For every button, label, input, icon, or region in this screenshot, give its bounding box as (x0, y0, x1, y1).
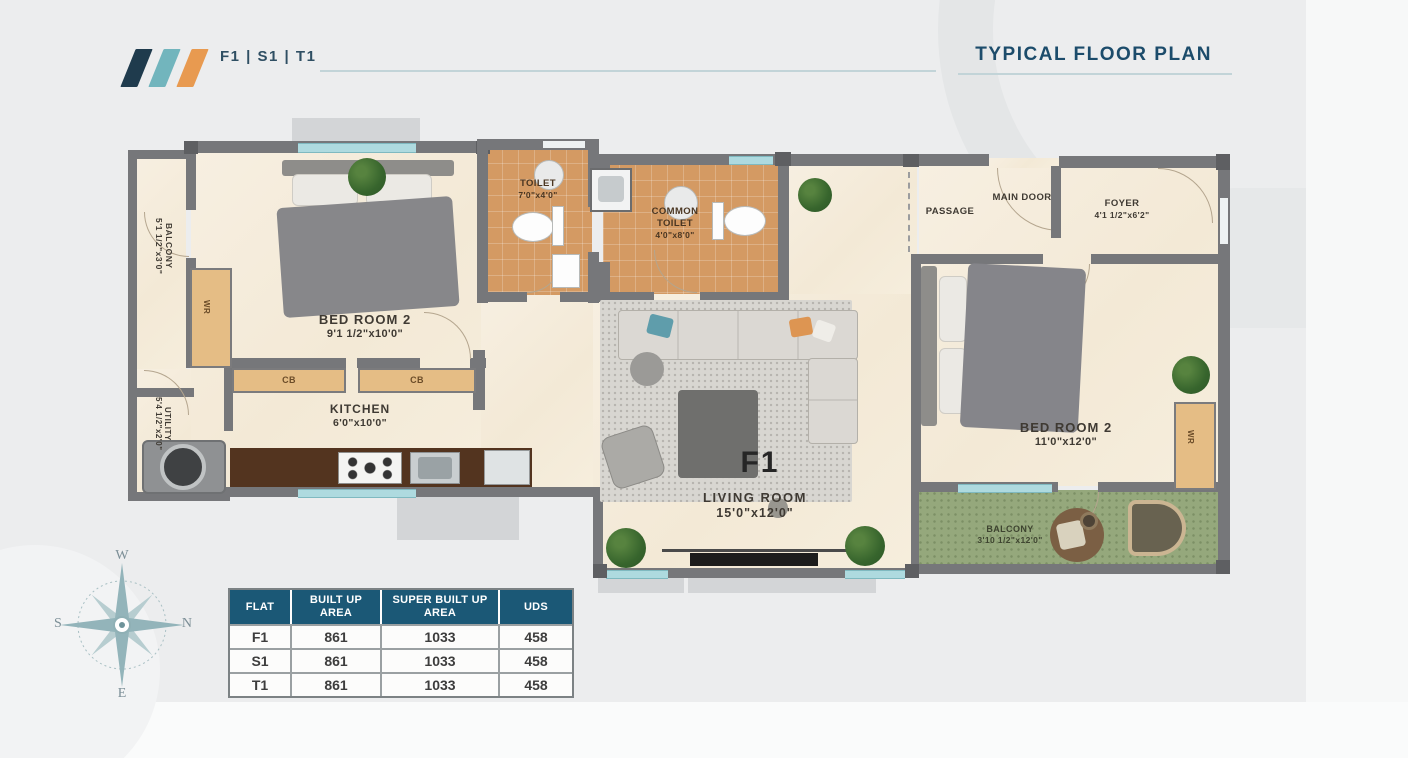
flat-codes: F1 | S1 | T1 (220, 48, 316, 65)
wall (911, 490, 919, 574)
window-kitchen (298, 489, 416, 498)
wall (1059, 156, 1228, 168)
wall (128, 150, 137, 397)
wardrobe-right-label: WR (1186, 430, 1195, 444)
brand-logo (122, 46, 214, 92)
title-underline (958, 73, 1232, 75)
compass-rose: W N S E (52, 550, 192, 700)
table-header-row: FLAT BUILT UP AREA SUPER BUILT UP AREA U… (230, 590, 572, 624)
sofa-pillow-orange (789, 316, 814, 338)
room-name: COMMON TOILET (640, 206, 710, 230)
room-dims: 4'1 1/2"x6'2" (1062, 210, 1182, 221)
balcony-chair-icon (1128, 500, 1186, 556)
room-dims: 7'0"x4'0" (486, 190, 590, 201)
logo-bar-orange (176, 49, 208, 87)
room-label-bedroom-left: BED ROOM 2 9'1 1/2"x10'0" (270, 312, 460, 342)
wall (128, 150, 190, 159)
logo-bar-navy (120, 49, 152, 87)
wall (1091, 254, 1228, 264)
toilet-wc-icon (512, 212, 554, 242)
room-label-utility: UTILITY 5'4 1/2"x2'0" (140, 370, 172, 478)
room-name: BED ROOM 2 (270, 312, 460, 328)
room-name: TOILET (486, 178, 590, 190)
room-dims: 15'0"x12'0" (655, 506, 855, 522)
bed-right-pillow (939, 276, 967, 342)
pouf (630, 352, 664, 386)
room-dims: 5'1 1/2"x3'0" (154, 218, 164, 274)
window-common-toilet (729, 156, 773, 165)
tv-console-icon (690, 553, 818, 566)
wall-pier (1216, 154, 1230, 170)
compass-left-label: S (54, 616, 62, 632)
basin (598, 176, 624, 202)
kitchen-sink-icon (410, 452, 460, 484)
wall (128, 363, 137, 501)
compass-star-icon (52, 550, 192, 700)
sink-basin (418, 457, 452, 479)
table-header-super-built-up: SUPER BUILT UP AREA (382, 590, 500, 624)
logo-bar-teal (148, 49, 180, 87)
room-name: UTILITY (163, 407, 172, 441)
room-name: FOYER (1062, 198, 1182, 210)
cell-flat: T1 (230, 672, 292, 696)
unit-label-f1: F1 (700, 446, 820, 480)
plant-icon (348, 158, 386, 196)
cell-uds: 458 (500, 624, 572, 648)
plant-icon (1172, 356, 1210, 394)
room-name: BALCONY (922, 524, 1098, 535)
room-dims: 4'0"x8'0" (620, 230, 730, 241)
cell-built-up: 861 (292, 672, 382, 696)
compass-bottom-label: E (52, 686, 192, 702)
plant-icon (798, 178, 832, 212)
compass-top-label: W (52, 548, 192, 564)
table-row: T1 861 1033 458 (230, 672, 572, 696)
room-label-balcony-left: BALCONY 5'1 1/2"x3'0" (140, 182, 174, 310)
room-dims: 6'0"x10'0" (252, 417, 468, 430)
cell-super-built-up: 1033 (382, 624, 500, 648)
cell-flat: F1 (230, 624, 292, 648)
wall (186, 150, 196, 210)
wall (778, 154, 789, 302)
wardrobe-left: WR (190, 268, 232, 368)
cell-uds: 458 (500, 648, 572, 672)
room-dims: 9'1 1/2"x10'0" (270, 328, 460, 342)
decor-right-strip (1306, 0, 1408, 758)
room-name: BED ROOM 2 (948, 420, 1184, 436)
cabinet-1-label: CB (234, 370, 344, 391)
compass-right-label: N (182, 616, 192, 632)
room-label-bedroom-right: BED ROOM 2 11'0"x12'0" (948, 420, 1184, 450)
wall (357, 358, 420, 368)
wall-pier (905, 564, 919, 578)
wall-pier (593, 564, 607, 578)
ledge-living-1 (598, 578, 684, 593)
window-toilet (543, 141, 585, 148)
dishwasher (484, 450, 530, 485)
wall (789, 154, 989, 166)
table-header-flat: FLAT (230, 590, 292, 624)
tv-shelf (662, 549, 848, 552)
common-toilet-wc-icon (724, 206, 766, 236)
floor-plan-page: F1 | S1 | T1 TYPICAL FLOOR PLAN (0, 0, 1408, 758)
wall-pier (903, 154, 919, 167)
table-header-built-up: BUILT UP AREA (292, 590, 382, 624)
window-bedroom-left (298, 143, 416, 153)
plant-icon (845, 526, 885, 566)
page-title: TYPICAL FLOOR PLAN (930, 44, 1212, 66)
wall-pier (1216, 560, 1230, 574)
room-label-toilet: TOILET 7'0"x4'0" (486, 178, 590, 201)
cell-built-up: 861 (292, 624, 382, 648)
stove-icon (338, 452, 402, 484)
toilet-wc-tank (552, 206, 564, 246)
bed-right-duvet (960, 263, 1086, 433)
wall (477, 139, 488, 303)
sofa-right (808, 358, 858, 444)
cell-flat: S1 (230, 648, 292, 672)
wardrobe-left-label: WR (202, 300, 211, 314)
decor-bottom-strip (0, 702, 1408, 758)
table-header-uds: UDS (500, 590, 572, 624)
room-label-passage: PASSAGE (898, 206, 1002, 218)
cell-uds: 458 (500, 672, 572, 696)
main-door-opening (989, 158, 1059, 168)
header-divider (320, 70, 936, 72)
bed-left-duvet (276, 196, 459, 318)
cabinet-2: CB (358, 368, 476, 393)
window-bedroom-right (958, 484, 1052, 493)
cabinet-2-label: CB (360, 370, 474, 391)
room-dims: 3'10 1/2"x12'0" (922, 535, 1098, 546)
room-name: LIVING ROOM (655, 490, 855, 506)
room-label-common-toilet: COMMON TOILET 4'0"x8'0" (620, 206, 730, 240)
window-living-1 (606, 570, 668, 579)
ledge-living-2 (688, 578, 876, 593)
room-name: BALCONY (164, 223, 174, 269)
cabinet-1: CB (232, 368, 346, 393)
wall (560, 292, 599, 302)
cell-super-built-up: 1033 (382, 672, 500, 696)
bed-right-headboard (921, 266, 937, 426)
room-label-living: LIVING ROOM 15'0"x12'0" (655, 490, 855, 522)
room-dims: 5'4 1/2"x2'0" (154, 397, 163, 450)
window-living-2 (845, 570, 905, 579)
cell-built-up: 861 (292, 648, 382, 672)
ledge-kitchen (397, 496, 519, 540)
room-name: KITCHEN (252, 402, 468, 417)
room-dims: 11'0"x12'0" (948, 436, 1184, 450)
wall (477, 292, 527, 302)
wall (911, 564, 1228, 574)
cell-super-built-up: 1033 (382, 648, 500, 672)
room-label-foyer: FOYER 4'1 1/2"x6'2" (1062, 198, 1182, 221)
wall-pier (775, 152, 791, 166)
room-label-balcony-bottom: BALCONY 3'10 1/2"x12'0" (922, 524, 1098, 546)
table-row: F1 861 1033 458 (230, 624, 572, 648)
toilet-washbasin (552, 254, 580, 288)
area-table: FLAT BUILT UP AREA SUPER BUILT UP AREA U… (228, 588, 574, 698)
wall-pier (184, 141, 198, 154)
window-foyer (1220, 198, 1228, 244)
table-row: S1 861 1033 458 (230, 648, 572, 672)
plant-icon (606, 528, 646, 568)
room-label-kitchen: KITCHEN 6'0"x10'0" (252, 402, 468, 430)
wall (911, 254, 921, 486)
